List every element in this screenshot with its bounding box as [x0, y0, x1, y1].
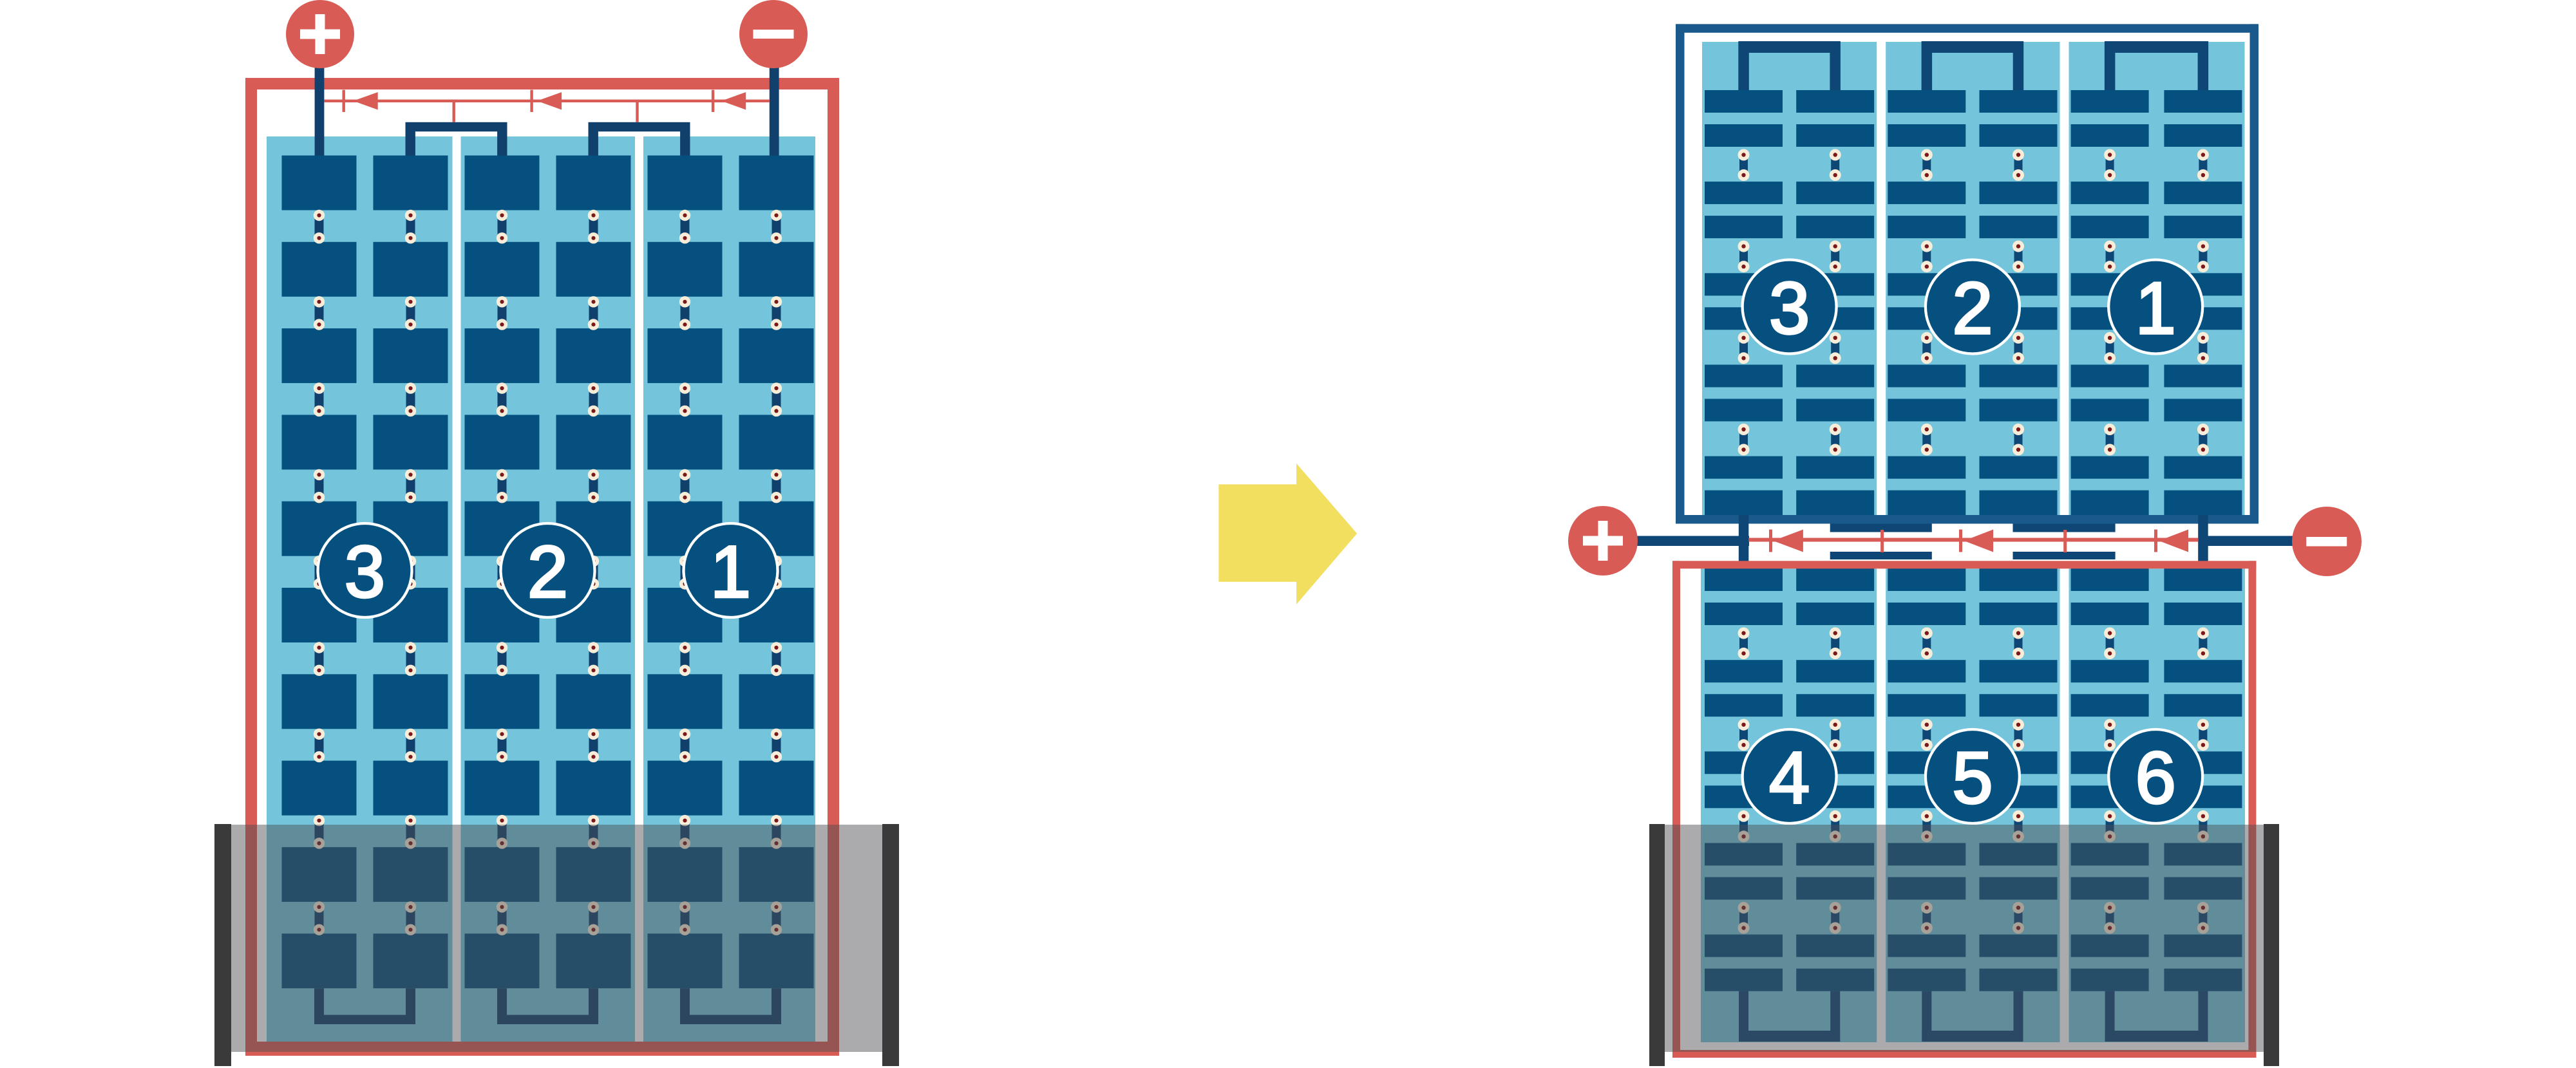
- svg-text:2: 2: [527, 532, 568, 614]
- svg-text:3: 3: [1769, 268, 1810, 350]
- svg-text:4: 4: [1769, 738, 1810, 820]
- svg-text:6: 6: [2135, 738, 2175, 820]
- svg-text:1: 1: [2135, 268, 2175, 350]
- svg-text:5: 5: [1952, 738, 1993, 820]
- svg-text:3: 3: [345, 532, 385, 614]
- svg-text:2: 2: [1952, 268, 1993, 350]
- svg-text:1: 1: [710, 532, 751, 614]
